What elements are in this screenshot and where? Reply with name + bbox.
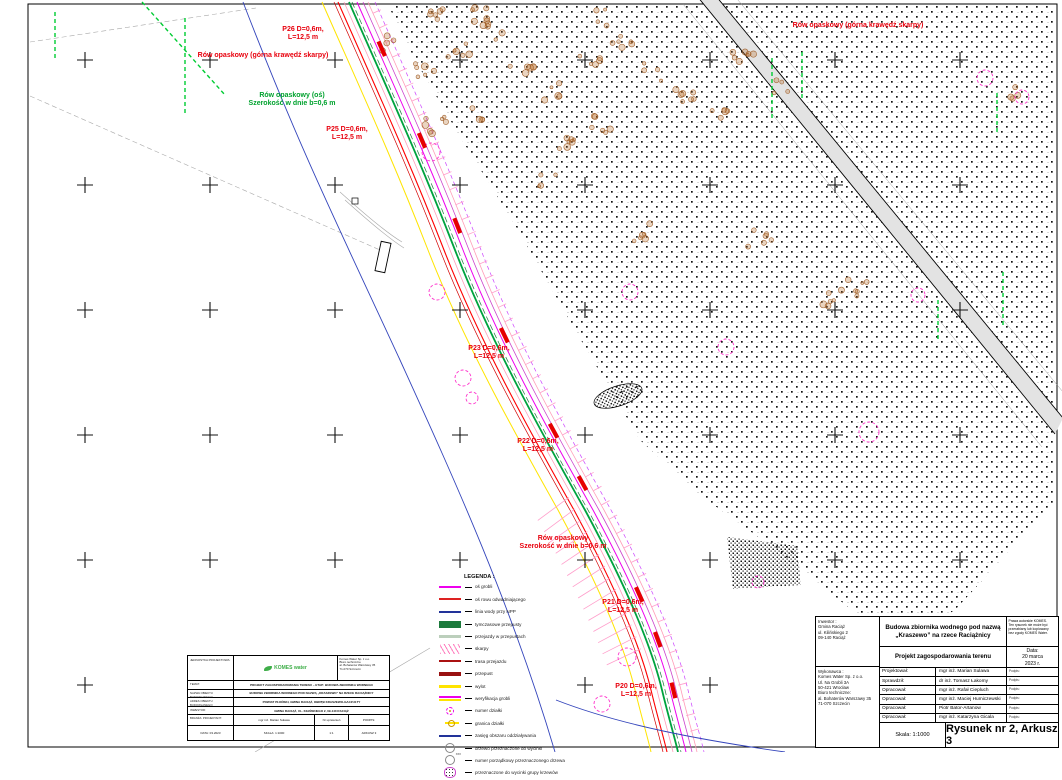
map-annotation: P21 D=0,6m,L=12,5 m: [602, 599, 643, 616]
legend-swatch-circle-numbered: xxx: [438, 755, 462, 765]
title-block: Inwestor :Gmina Raciążul. Kilińskiego 20…: [815, 616, 1059, 748]
legend-item: tymczasowe przepusty: [438, 619, 566, 629]
legend-item-label: przeznaczone do wycinki grupy krzewów: [475, 770, 558, 775]
legend-separator: [465, 599, 472, 600]
legend-item-label: skarpy: [475, 646, 489, 651]
legend: LEGENDA : oś groblioś rowu odwadniająceg…: [438, 574, 566, 780]
project-title: Budowa zbiornika wodnego pod nazwą„Krasz…: [880, 617, 1006, 646]
legend-separator: [465, 686, 472, 687]
legend-separator: [465, 710, 472, 711]
legend-item-label: numer działki: [475, 708, 502, 713]
legend-items: oś groblioś rowu odwadniającegolinia wod…: [438, 582, 566, 778]
signature-cell: Podpis:: [1007, 677, 1058, 685]
project-info-row: ADRES OBIEKTU BUDOWLANEGO:POWIAT PŁOŃSKI…: [188, 698, 389, 707]
legend-swatch-line-yellow: [438, 681, 462, 691]
legend-item: przejazdy w przepustach: [438, 632, 566, 642]
legend-item: numer działki: [438, 706, 566, 716]
legend-item: zasięg obszaru oddziaływania: [438, 731, 566, 741]
project-info-value: POWIAT PŁOŃSKI, GMINA RACIĄŻ, OBRĘB KRAS…: [234, 698, 389, 706]
company-logo: KOMES water: [234, 656, 337, 680]
legend-item: weryfikacja grobli: [438, 694, 566, 704]
role-label: Opracował:: [880, 705, 936, 713]
legend-swatch-line-darkred-thick: [438, 669, 462, 679]
parcel-lines: [30, 8, 430, 752]
contractor-info: Wykonawca :Komes Water Sp. z o.o.Ul. Na …: [816, 667, 879, 709]
legend-separator: [465, 673, 472, 674]
legend-separator: [465, 587, 472, 588]
legend-item-label: wylot: [475, 684, 485, 689]
legend-item: granica działki: [438, 718, 566, 728]
dotted-field-area: [380, 5, 1056, 645]
legend-item-label: weryfikacja grobli: [475, 696, 510, 701]
project-info-label: ADRES OBIEKTU BUDOWLANEGO:: [188, 698, 234, 706]
role-row: Opracował:mgr inż. Katarzyna GicalaPodpi…: [880, 714, 1058, 723]
company-address: Komes Water Sp. z o.o.Biuro techniczneal…: [337, 656, 389, 680]
legend-swatch-circle-magenta: [438, 706, 462, 716]
map-annotation: P22 D=0,6m,L=12,5 m: [517, 438, 558, 455]
role-name: dr inż. Tomasz Łakomy: [936, 677, 1007, 685]
legend-swatch-line-pale: [438, 632, 462, 642]
role-label: Opracował:: [880, 695, 936, 703]
role-row: Opracował:mgr inż. Maciej HumiczewskiPod…: [880, 695, 1058, 704]
legend-item-label: przepust: [475, 671, 493, 676]
title-block-left: Inwestor :Gmina Raciążul. Kilińskiego 20…: [816, 617, 880, 747]
leaf-icon: [264, 666, 272, 671]
role-label: Sprawdził:: [880, 677, 936, 685]
project-info-row: TEMAT:PROJEKT ZAGOSPODAROWANIA TERENU – …: [188, 681, 389, 690]
legend-item-label: granica działki: [475, 721, 504, 726]
role-name: mgr inż. Rafał Ciepluch: [936, 686, 1007, 694]
legend-item: przepust: [438, 669, 566, 679]
legend-separator: [465, 735, 472, 736]
legend-separator: [465, 748, 472, 749]
copyright-note: Prawa autorskie KOMES.Ten rysunek nie mo…: [1006, 617, 1058, 646]
logo-text: KOMES water: [274, 665, 307, 671]
legend-swatch-line-magenta: [438, 582, 462, 592]
design-unit-label: JEDNOSTKA PROJEKTOWA:: [188, 656, 234, 680]
signature-cell: Podpis:: [1007, 668, 1058, 676]
legend-item-label: linia wody przy NPP: [475, 609, 516, 614]
drawing-number: Rysunek nr 2, Arkusz 3: [946, 723, 1058, 747]
legend-swatch-line-darkred: [438, 656, 462, 666]
map-annotation: P23 D=0,6m,L=12,5 m: [468, 345, 509, 362]
map-annotation: Rów opaskowy (górna krawędź skarpy): [793, 22, 924, 30]
designer-row: BRANŻA: PROJEKTANT: mgr inż. Marian Sula…: [188, 715, 389, 726]
legend-item-label: oś grobli: [475, 584, 492, 589]
legend-item-label: oś rowu odwadniającego: [475, 597, 526, 602]
legend-item-label: przejazdy w przepustach: [475, 634, 526, 639]
legend-separator: [465, 624, 472, 625]
role-row: Opracował:mgr inż. Rafał CiepluchPodpis:: [880, 686, 1058, 695]
legend-separator: [465, 661, 472, 662]
project-info-header: JEDNOSTKA PROJEKTOWA: KOMES water Komes …: [188, 656, 389, 681]
legend-separator: [465, 698, 472, 699]
legend-separator: [465, 636, 472, 637]
legend-separator: [465, 648, 472, 649]
legend-separator: [465, 723, 472, 724]
legend-item-label: numer porządkowy przeznaczonego drzewa: [475, 758, 565, 763]
legend-separator: [465, 772, 472, 773]
legend-separator: [465, 611, 472, 612]
legend-item-label: drzewo przeznaczone do wycinki: [475, 746, 542, 751]
signature-cell: Podpis:: [1007, 714, 1058, 722]
legend-item: oś grobli: [438, 582, 566, 592]
project-info-label: NAZWA OBIEKTU BUDOWLANEGO:: [188, 690, 234, 698]
scale-cell: Skala: 1:1000: [880, 723, 946, 747]
map-annotation: Rów opaskowySzerokość w dnie b=0,6 m: [520, 535, 607, 552]
project-info-row: INWESTOR:GMINA RACIĄŻ, UL. KILIŃSKIEGO 2…: [188, 707, 389, 716]
date-cell: Data:20 marca2023 r.: [1006, 647, 1058, 667]
legend-item-label: trasa przejazdu: [475, 659, 506, 664]
building-outline: [352, 198, 391, 273]
legend-item: trasa przejazdu: [438, 656, 566, 666]
project-info-rows: TEMAT:PROJEKT ZAGOSPODAROWANIA TERENU – …: [188, 681, 389, 715]
legend-title: LEGENDA :: [464, 574, 566, 580]
date-scale-row: DATA: 03.2023 SKALA: 1:1000 1:1 ARKUSZ 3: [188, 726, 389, 740]
project-info-value: PROJEKT ZAGOSPODAROWANIA TERENU – ETAP: …: [234, 681, 389, 689]
legend-item: oś rowu odwadniającego: [438, 594, 566, 604]
map-annotation: Rów opaskowy (oś)Szerokość w dnie b=0,6 …: [249, 92, 336, 109]
legend-swatch-rect-green: [438, 619, 462, 629]
legend-swatch-circle-yellow: [438, 718, 462, 728]
map-annotation: P20 D=0,6m,L=12,5 m: [615, 683, 656, 700]
project-info-block: JEDNOSTKA PROJEKTOWA: KOMES water Komes …: [187, 655, 390, 741]
map-annotation: P26 D=0,6m,L=12,5 m: [282, 26, 323, 43]
role-label: Opracował:: [880, 686, 936, 694]
map-annotation: P25 D=0,6m,L=12,5 m: [326, 126, 367, 143]
legend-item: przeznaczone do wycinki grupy krzewów: [438, 768, 566, 778]
legend-item-label: zasięg obszaru oddziaływania: [475, 733, 536, 738]
legend-item-label: tymczasowe przepusty: [475, 622, 521, 627]
legend-swatch-line-navy: [438, 607, 462, 617]
role-name: mgr inż. Marian Sulawa: [936, 668, 1007, 676]
signature-cell: Podpis:: [1007, 686, 1058, 694]
title-block-main: Budowa zbiornika wodnego pod nazwą„Krasz…: [880, 617, 1058, 747]
project-info-value: GMINA RACIĄŻ, UL. KILIŃSKIEGO 2, 09-140 …: [234, 707, 389, 715]
legend-separator: [465, 760, 472, 761]
legend-item: xxxnumer porządkowy przeznaczonego drzew…: [438, 755, 566, 765]
project-info-label: TEMAT:: [188, 681, 234, 689]
role-label: Opracował:: [880, 714, 936, 722]
role-row: Opracował:Piotr Bator-ArtanowPodpis:: [880, 705, 1058, 714]
legend-swatch-line-red: [438, 594, 462, 604]
legend-item: wylot: [438, 681, 566, 691]
map-annotation: Rów opaskowy (górna krawędź skarpy): [198, 52, 329, 60]
signature-cell: Podpis:: [1007, 695, 1058, 703]
legend-swatch-blob-hatch: [438, 768, 462, 778]
legend-item: linia wody przy NPP: [438, 607, 566, 617]
drawing-subtitle: Projekt zagospodarowania terenu: [880, 647, 1006, 667]
legend-swatch-line-magenta-yellow: [438, 694, 462, 704]
role-row: Sprawdził:dr inż. Tomasz ŁakomyPodpis:: [880, 677, 1058, 686]
legend-item: skarpy: [438, 644, 566, 654]
roles-rows: Projektował:mgr inż. Marian SulawaPodpis…: [880, 668, 1058, 723]
role-row: Projektował:mgr inż. Marian SulawaPodpis…: [880, 668, 1058, 677]
project-info-label: INWESTOR:: [188, 707, 234, 715]
role-name: mgr inż. Maciej Humiczewski: [936, 695, 1007, 703]
legend-swatch-line-navy: [438, 731, 462, 741]
legend-swatch-hatch-pink: [438, 644, 462, 654]
project-info-row: NAZWA OBIEKTU BUDOWLANEGO:BUDOWA ZBIORNI…: [188, 690, 389, 699]
project-info-value: BUDOWA ZBIORNIKA WODNEGO POD NAZWĄ „KRAS…: [234, 690, 389, 698]
role-name: mgr inż. Katarzyna Gicala: [936, 714, 1007, 722]
role-name: Piotr Bator-Artanow: [936, 705, 1007, 713]
investor-info: Inwestor :Gmina Raciążul. Kilińskiego 20…: [816, 617, 879, 667]
role-label: Projektował:: [880, 668, 936, 676]
signature-cell: Podpis:: [1007, 705, 1058, 713]
